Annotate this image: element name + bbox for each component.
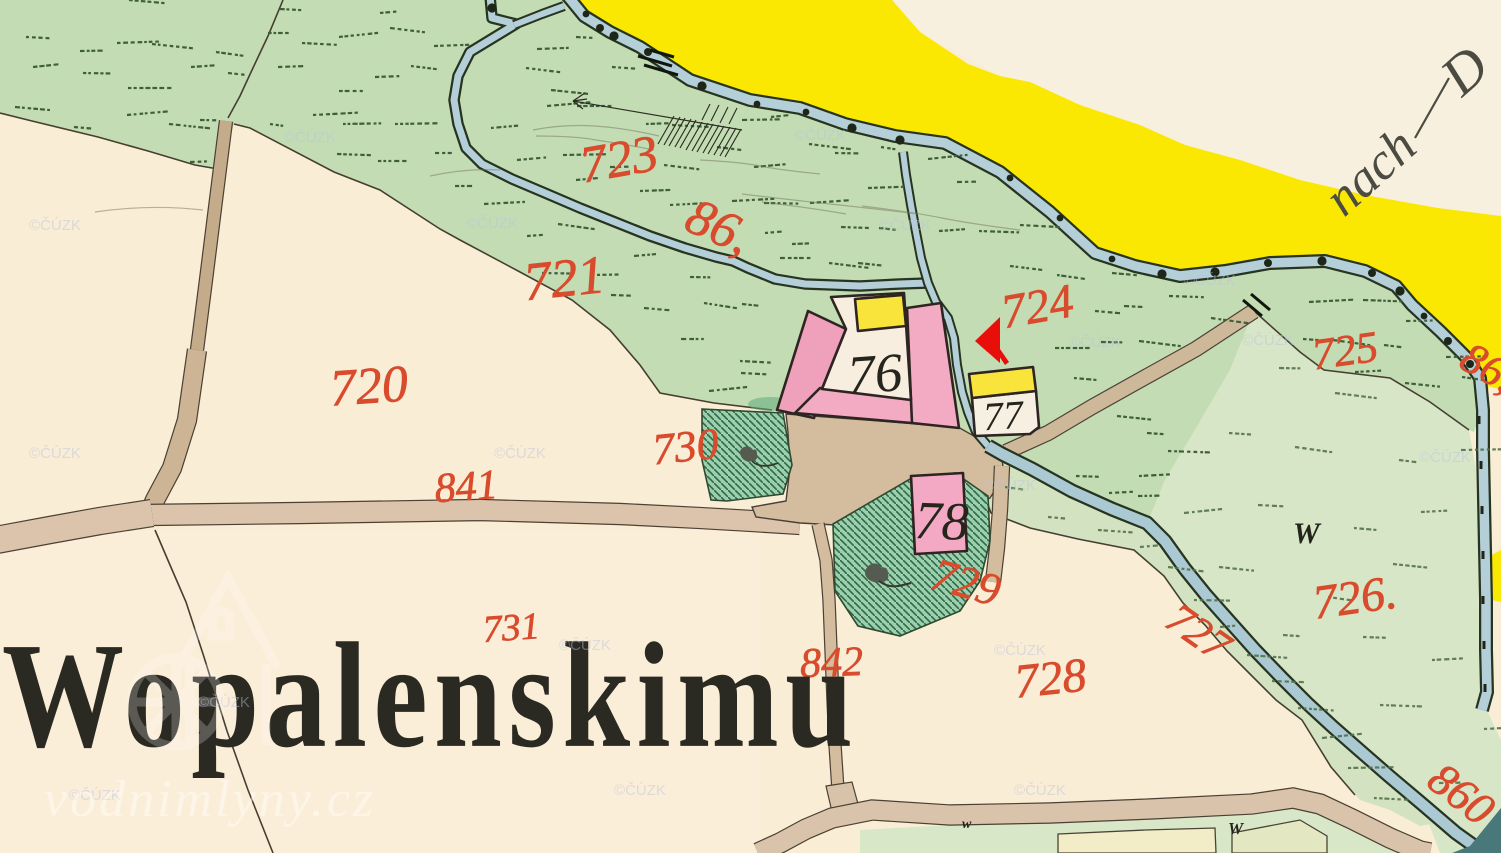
svg-text:w: w xyxy=(962,817,972,832)
svg-text:W: W xyxy=(1228,819,1245,838)
svg-text:©ČÚZK: ©ČÚZK xyxy=(284,129,336,146)
svg-text:©ČÚZK: ©ČÚZK xyxy=(794,127,846,144)
svg-text:78: 78 xyxy=(914,490,970,552)
svg-text:©ČÚZK: ©ČÚZK xyxy=(614,782,666,799)
svg-text:841: 841 xyxy=(433,462,499,512)
svg-text:76: 76 xyxy=(845,341,905,406)
svg-text:©ČÚZK: ©ČÚZK xyxy=(29,217,81,234)
svg-text:730: 730 xyxy=(650,419,721,475)
svg-text:W: W xyxy=(1293,517,1322,550)
svg-text:©ČÚZK: ©ČÚZK xyxy=(879,217,931,234)
svg-text:77: 77 xyxy=(982,392,1027,440)
svg-text:©ČÚZK: ©ČÚZK xyxy=(29,445,81,462)
svg-text:vodnimlyny.cz: vodnimlyny.cz xyxy=(44,771,376,828)
svg-text:725: 725 xyxy=(1309,322,1381,380)
svg-text:720: 720 xyxy=(328,355,410,417)
svg-text:©ČÚZK: ©ČÚZK xyxy=(494,445,546,462)
svg-text:©ČÚZK: ©ČÚZK xyxy=(984,477,1036,494)
svg-text:©ČÚZK: ©ČÚZK xyxy=(1242,332,1294,349)
svg-text:©ČÚZK: ©ČÚZK xyxy=(1419,449,1471,466)
svg-text:©ČÚZK: ©ČÚZK xyxy=(1014,782,1066,799)
svg-text:©ČÚZK: ©ČÚZK xyxy=(559,637,611,654)
svg-text:©ČÚZK: ©ČÚZK xyxy=(994,642,1046,659)
svg-text:©ČÚZK: ©ČÚZK xyxy=(1184,272,1236,289)
svg-text:©ČÚZK: ©ČÚZK xyxy=(1069,334,1121,351)
svg-text:721: 721 xyxy=(521,244,608,312)
svg-text:©ČÚZK: ©ČÚZK xyxy=(466,215,518,232)
